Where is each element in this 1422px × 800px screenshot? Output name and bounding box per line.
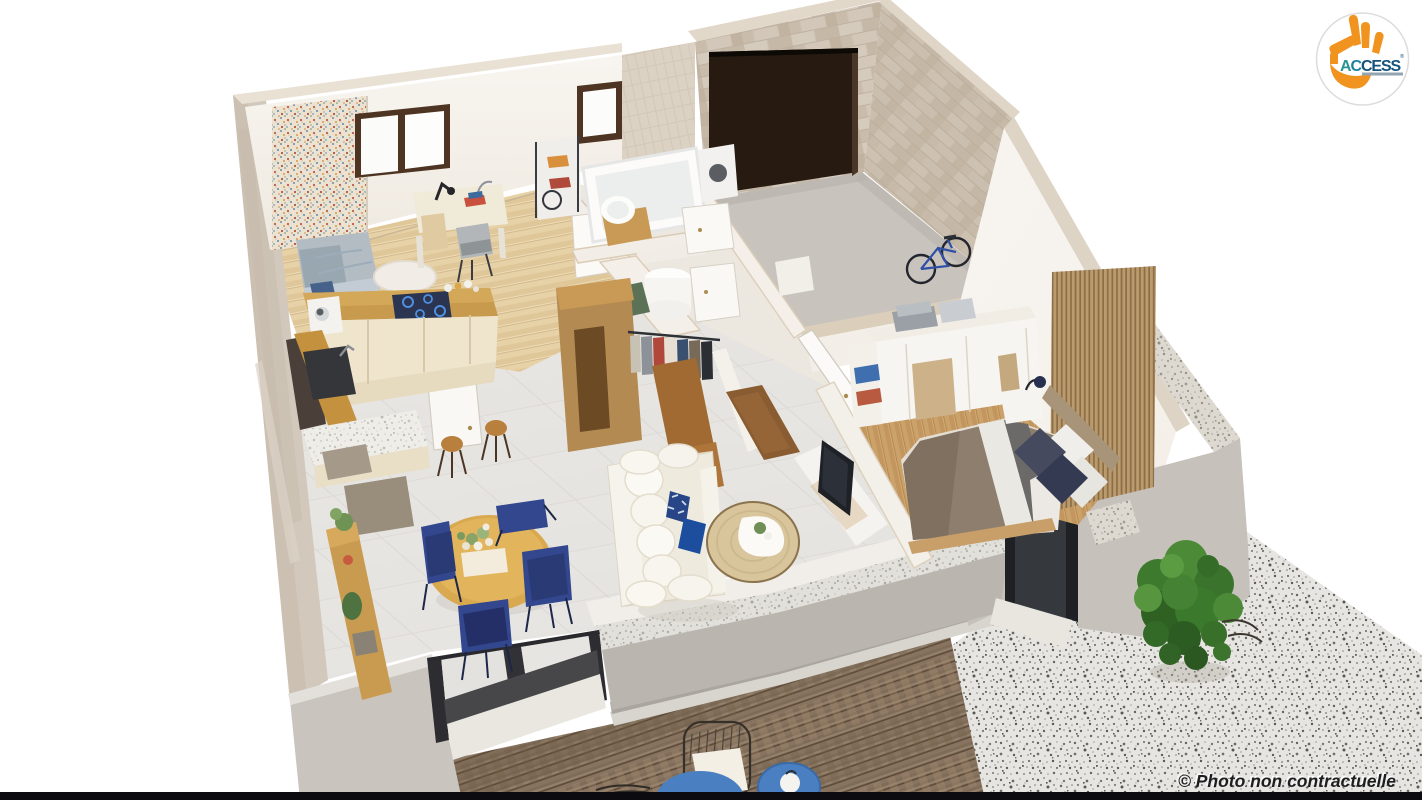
svg-text:ACCESS: ACCESS: [1340, 58, 1402, 75]
svg-text:®: ®: [1400, 53, 1404, 60]
svg-text:© Photo non contractuelle: © Photo non contractuelle: [1178, 771, 1396, 791]
